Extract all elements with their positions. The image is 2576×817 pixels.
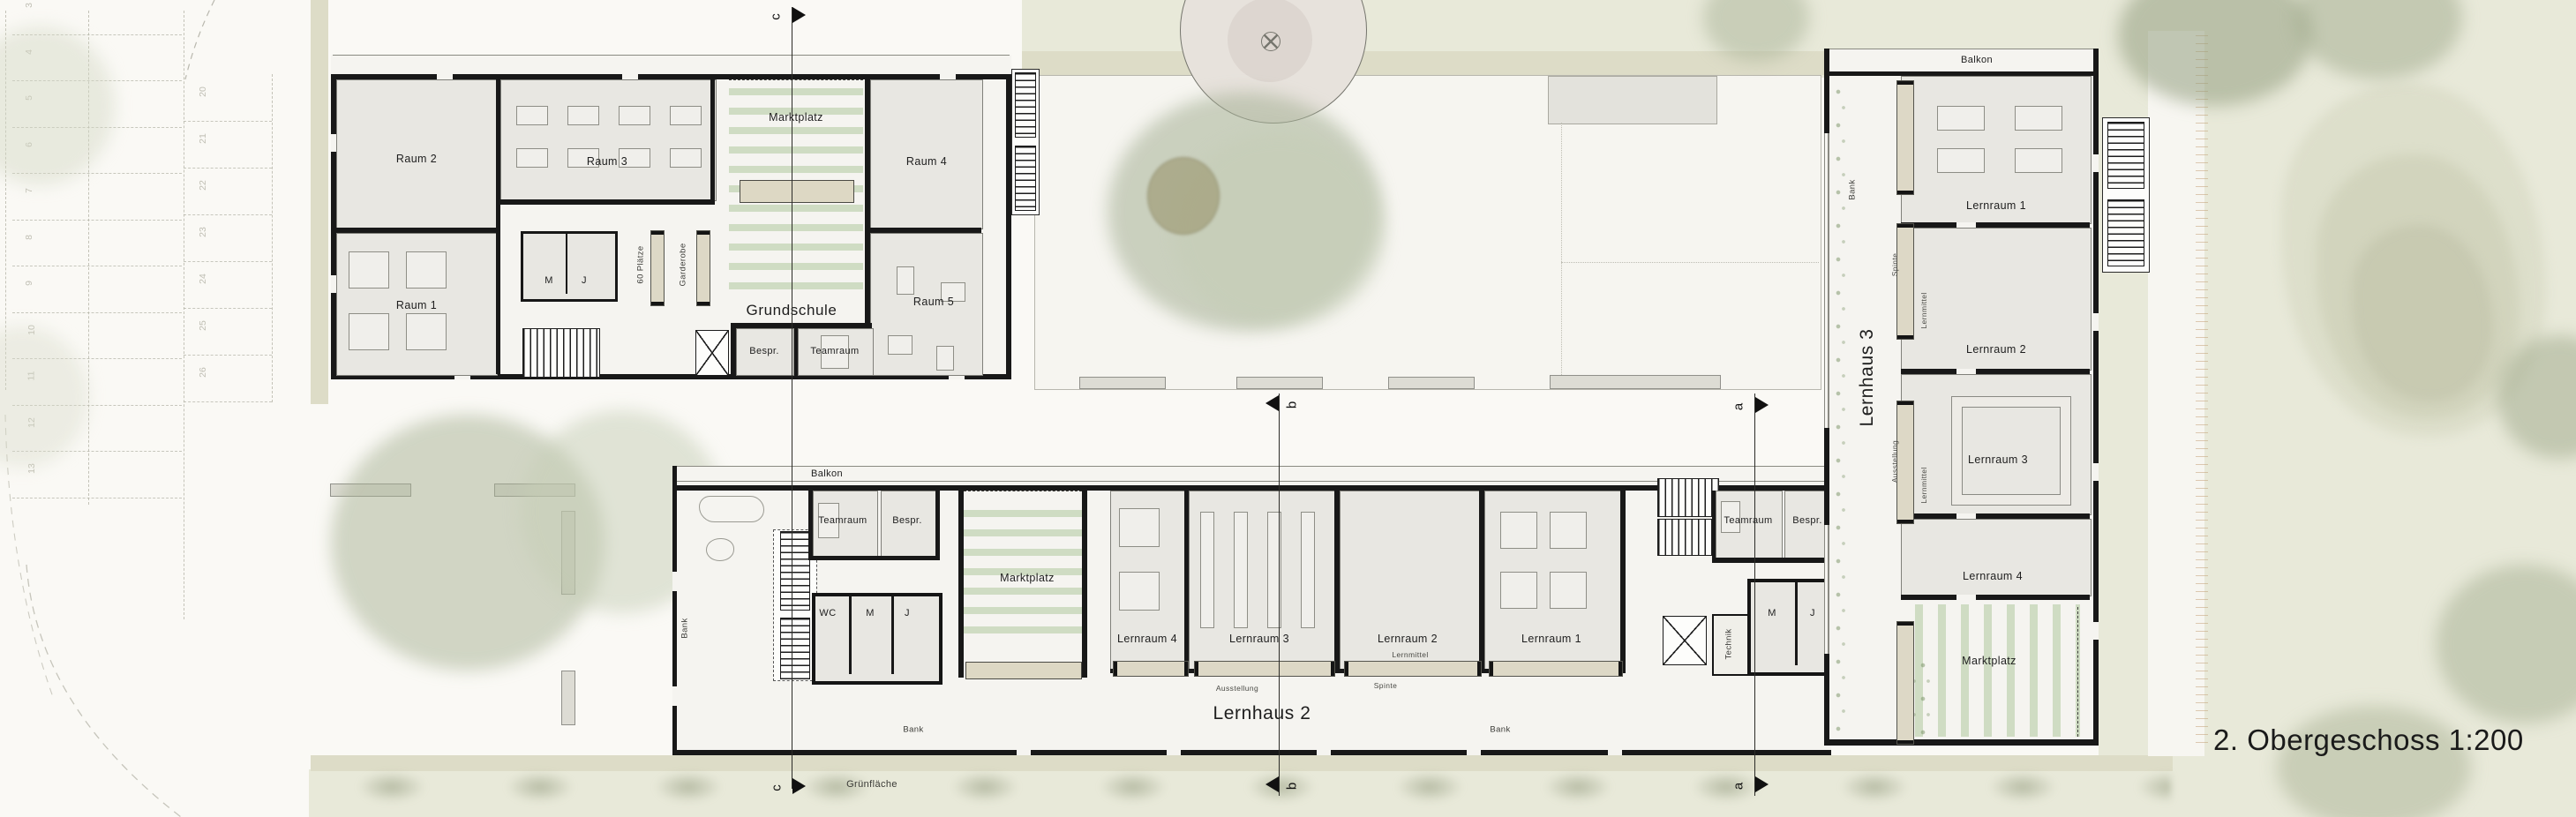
window — [2093, 313, 2099, 331]
wall — [672, 466, 677, 755]
parapet-line — [1824, 49, 2099, 49]
section-marker-b-bottom — [1265, 776, 1279, 792]
parking-stall-number: 25 — [198, 320, 208, 331]
parking-stall-number: 9 — [24, 281, 34, 286]
building-lernhaus3: Bank Lernhaus 3 Balkon Lernraum 1 — [1824, 49, 2099, 746]
wall — [1620, 491, 1626, 673]
parking-stall-number: 23 — [198, 227, 208, 237]
drawing-title: 2. Obergeschoss 1:200 — [2213, 723, 2524, 757]
wall — [336, 228, 496, 233]
window — [1317, 750, 1331, 755]
room-label: Lernraum 1 — [1521, 633, 1581, 645]
spinte-label: Spinte — [1890, 253, 1899, 277]
room-label: Bespr. — [892, 515, 922, 526]
spinte-bar — [1490, 662, 1622, 676]
desk — [670, 148, 702, 168]
sofa — [699, 496, 764, 522]
exterior-stair — [2102, 117, 2150, 273]
room-label: J — [905, 608, 910, 618]
counter — [965, 662, 1082, 679]
room-label: Lernraum 2 — [1378, 633, 1438, 645]
section-letter: c — [769, 13, 784, 20]
door-gap — [1956, 513, 1976, 519]
parking-stall: 3 — [12, 0, 182, 35]
wall — [870, 228, 981, 233]
desk-cluster — [1550, 572, 1587, 609]
parapet-line — [333, 55, 1010, 56]
wall — [2093, 49, 2099, 746]
parking-stall: 23 — [184, 214, 272, 262]
wc-block — [1747, 579, 1836, 676]
desk-cluster — [349, 313, 389, 350]
wall — [935, 491, 940, 560]
stair-flight — [2107, 199, 2144, 266]
desk — [1937, 148, 1985, 173]
parking-stall: 9 — [12, 266, 182, 313]
window — [1167, 750, 1181, 755]
section-letter: c — [770, 784, 785, 791]
wall — [1824, 654, 1829, 746]
room-label: Lernraum 4 — [1963, 570, 2023, 582]
parking-column-left: 345678910111213 — [12, 0, 182, 547]
lernmittel-label: Lernmittel — [1919, 467, 1928, 503]
parking-stall-number: 21 — [198, 133, 208, 144]
ausstellung-label: Ausstellung — [1216, 684, 1258, 693]
conference-ring-table — [1952, 397, 2070, 505]
desk-cluster — [1119, 508, 1160, 547]
parking-stall-number: 26 — [198, 367, 208, 378]
room-label: Lernraum 3 — [1968, 453, 2028, 466]
parking-stall-number: 24 — [198, 274, 208, 284]
room-label: Bespr. — [749, 346, 779, 356]
section-letter: b — [1285, 783, 1300, 790]
desk — [1234, 512, 1248, 628]
building-label: Lernhaus 3 — [1857, 328, 1878, 426]
desk — [619, 106, 650, 125]
path-left-vertical — [311, 0, 328, 404]
parking-stall: 8 — [12, 220, 182, 267]
room-label: Garderobe — [679, 243, 688, 286]
building-grundschule: Raum 2 Raum 3 Raum 4 Raum 1 Raum 5 Markt… — [331, 55, 1011, 379]
wall — [1795, 582, 1798, 665]
garderobe-bar — [651, 231, 664, 305]
room-raum-4 — [870, 79, 983, 229]
wall — [849, 596, 852, 674]
desk — [2015, 106, 2062, 131]
stair-flight — [2107, 122, 2144, 189]
spinte-bar — [1114, 662, 1188, 676]
parking-stall: 24 — [184, 261, 272, 309]
parking-column-right: 20212223242526 — [184, 74, 272, 402]
bank-label: Bank — [903, 725, 923, 735]
plaza-bench — [330, 483, 411, 497]
counter — [740, 180, 854, 203]
spinte-bar — [1897, 81, 1913, 194]
parking-stall: 21 — [184, 121, 272, 169]
plaza-bench — [561, 511, 575, 595]
room-label: Raum 5 — [913, 296, 954, 308]
section-letter: b — [1285, 401, 1300, 408]
room-label: 60 Plätze — [636, 245, 646, 283]
room-label: Raum 2 — [396, 153, 437, 165]
parapet-line — [672, 466, 1831, 467]
wall — [1334, 491, 1340, 673]
window — [672, 572, 677, 591]
section-marker-a-top — [1755, 397, 1769, 413]
courtyard-terrace — [1548, 76, 1717, 124]
plaza-tree-icon — [1261, 32, 1280, 51]
room-label: M — [866, 608, 875, 618]
exterior-stair — [1011, 69, 1040, 215]
room-label: Raum 3 — [587, 155, 627, 168]
desk — [2015, 148, 2062, 173]
courtyard-bench — [1388, 377, 1475, 389]
bank-label: Bank — [1848, 179, 1858, 199]
section-letter: a — [1731, 783, 1746, 790]
wall — [672, 750, 1831, 755]
room-label: Lernraum 3 — [1229, 633, 1289, 645]
wall — [710, 79, 715, 205]
stair-flight — [1657, 519, 1719, 556]
room-lernraum-4 — [1901, 519, 2092, 596]
wall — [496, 79, 500, 374]
section-line-c — [792, 7, 792, 789]
parking-stall-number: 8 — [24, 235, 34, 240]
courtyard-bench — [1236, 377, 1323, 389]
wall — [1824, 49, 1829, 133]
parking-stall-number: 20 — [198, 86, 208, 97]
bank-label: Bank — [680, 618, 690, 638]
elevator — [695, 330, 729, 376]
path-top — [1022, 51, 1824, 75]
room-label: Technik — [1724, 628, 1734, 659]
building-lernhaus2: Balkon Bank Teamraum Bespr. WC M J Markt… — [672, 466, 1831, 755]
plaza-bench — [494, 483, 575, 497]
lernmittel-label: Lernmittel — [1919, 292, 1928, 328]
plaza-bench — [561, 671, 575, 725]
desk-cluster — [1500, 572, 1537, 609]
parking-stall: 4 — [12, 34, 182, 82]
road-edge-line — [5, 11, 6, 390]
balkon-label: Balkon — [811, 468, 843, 479]
parking-stall-number: 6 — [24, 142, 34, 147]
parapet-line — [1824, 49, 1825, 746]
room-label: Teamraum — [810, 346, 859, 356]
parking-stall-number: 5 — [24, 95, 34, 101]
room-label: Lernraum 1 — [1966, 199, 2026, 212]
desk — [936, 346, 954, 371]
desk — [1301, 512, 1315, 628]
room-label: Raum 1 — [396, 299, 437, 311]
stair-flight — [1015, 72, 1036, 138]
desk — [1937, 106, 1985, 131]
desk — [516, 148, 548, 168]
parking-stall: 5 — [12, 80, 182, 128]
desk-cluster — [1119, 572, 1160, 611]
courtyard-dotted-line-v — [1561, 123, 1562, 387]
wc-block — [812, 593, 943, 685]
desk — [1200, 512, 1214, 628]
wall — [1901, 222, 2090, 228]
glass-wall — [1828, 133, 1829, 654]
wc-block — [521, 231, 618, 302]
spinte-label: Spinte — [1374, 681, 1398, 690]
gruenflaeche-label: Grünfläche — [846, 779, 897, 790]
lernmittel-label: Lernmittel — [1392, 650, 1428, 659]
room-raum-3 — [500, 79, 717, 201]
wall — [1479, 491, 1484, 673]
parking-stall: 11 — [12, 358, 182, 406]
parking-stall-number: 4 — [24, 49, 34, 55]
parking-stall: 22 — [184, 168, 272, 215]
desk-cluster — [406, 251, 447, 289]
ausstellung-label: Ausstellung — [1890, 440, 1899, 483]
door-gap — [1956, 369, 1976, 374]
wall — [1824, 739, 2099, 746]
room-label: J — [582, 275, 587, 286]
marktplatz-floor — [1915, 604, 2080, 737]
room-label: Lernraum 2 — [1966, 343, 2026, 356]
parking-line — [272, 74, 273, 402]
spinte-bar — [1897, 401, 1913, 523]
wall — [1824, 428, 1829, 525]
hedge-row — [318, 761, 2171, 817]
desk — [897, 266, 914, 295]
desk — [516, 106, 548, 125]
desk-cluster — [406, 313, 447, 350]
parking-stall-number: 10 — [26, 325, 37, 335]
room-label: Bespr. — [1792, 515, 1822, 526]
desk-cluster — [349, 251, 389, 289]
desk — [888, 335, 912, 355]
section-marker-b-top — [1265, 395, 1279, 411]
parking-stall-number: 11 — [26, 371, 36, 381]
door-gap — [1956, 595, 1976, 600]
curtain-line — [729, 79, 863, 80]
wall — [1716, 558, 1829, 563]
parking-stall-number: 12 — [26, 417, 37, 428]
room-label: WC — [819, 608, 836, 618]
courtyard-bench — [1550, 375, 1721, 389]
parking-stall-number: 13 — [26, 463, 37, 474]
bank-label: Bank — [1490, 725, 1510, 735]
desk-cluster — [1550, 512, 1587, 549]
room-label: M — [544, 275, 553, 286]
parking-stall-number: 3 — [24, 3, 34, 8]
room-label: Lernraum 4 — [1117, 633, 1177, 645]
stair-flight — [1657, 478, 1719, 517]
courtyard-dotted-line-h — [1561, 262, 1819, 263]
parking-stall: 20 — [184, 74, 272, 122]
room-label: J — [1810, 608, 1815, 618]
wall — [1184, 491, 1189, 673]
window — [1608, 750, 1622, 755]
floor-plan: 345678910111213 20212223242526 — [0, 0, 2576, 817]
curtain-line — [964, 491, 1082, 491]
elevator — [1663, 616, 1707, 665]
wall — [813, 556, 940, 560]
parking-stall: 12 — [12, 405, 182, 453]
stair-flight — [1015, 146, 1036, 211]
folding-partition — [2077, 607, 2078, 737]
parking-stall-number: 7 — [24, 188, 34, 193]
window — [2093, 622, 2099, 640]
spinte-bar — [1897, 622, 1913, 744]
section-marker-a-bottom — [1755, 776, 1769, 792]
parking-stall: 13 — [12, 451, 182, 498]
window — [1017, 750, 1031, 755]
window — [2093, 463, 2099, 481]
door-gap — [1956, 222, 1976, 228]
parking-stall: 25 — [184, 308, 272, 356]
window — [1467, 750, 1481, 755]
wall — [1901, 513, 2090, 519]
wall — [566, 234, 567, 294]
room-label: Marktplatz — [1962, 655, 2016, 667]
parking-stall: 10 — [12, 312, 182, 360]
wall — [891, 596, 894, 674]
desk — [670, 106, 702, 125]
balkon-label: Balkon — [1961, 55, 1993, 65]
section-marker-c-bottom — [792, 778, 806, 794]
section-line-a — [1754, 394, 1755, 796]
room-label: Marktplatz — [769, 111, 823, 124]
room-label: Marktplatz — [1000, 572, 1055, 584]
staircase — [522, 328, 600, 378]
wall — [1901, 595, 2090, 600]
garderobe-bar — [697, 231, 710, 305]
room-label: M — [1768, 608, 1776, 618]
spinte-bar — [1195, 662, 1334, 676]
desk-cluster — [1500, 512, 1537, 549]
spinte-bar — [1345, 662, 1481, 676]
tree-crown-center — [1147, 157, 1220, 235]
wall — [500, 199, 715, 205]
courtyard — [1034, 75, 1821, 390]
window — [672, 686, 677, 706]
building-label: Lernhaus 2 — [1213, 703, 1311, 724]
stair-flight — [780, 531, 810, 611]
courtyard-bench — [1079, 377, 1166, 389]
window — [2093, 154, 2099, 172]
parking-stall: 26 — [184, 355, 272, 402]
section-line-b — [1279, 394, 1280, 796]
embankment-hatching — [2196, 35, 2208, 750]
spinte-bar — [1897, 224, 1913, 339]
parking-stall: 7 — [12, 173, 182, 221]
room-label: Teamraum — [1724, 515, 1772, 526]
room-label: Raum 4 — [906, 155, 947, 168]
sofa — [706, 538, 734, 561]
wall — [1901, 369, 2090, 374]
section-letter: a — [1731, 403, 1746, 410]
parking-stall-number: 22 — [198, 180, 208, 191]
corridor-plants — [1833, 84, 1845, 737]
room-label: Teamraum — [818, 515, 867, 526]
wall — [1082, 491, 1087, 678]
section-marker-c-top — [792, 7, 806, 23]
stair-flight — [780, 618, 810, 679]
parking-stall: 6 — [12, 127, 182, 175]
desk — [567, 106, 599, 125]
